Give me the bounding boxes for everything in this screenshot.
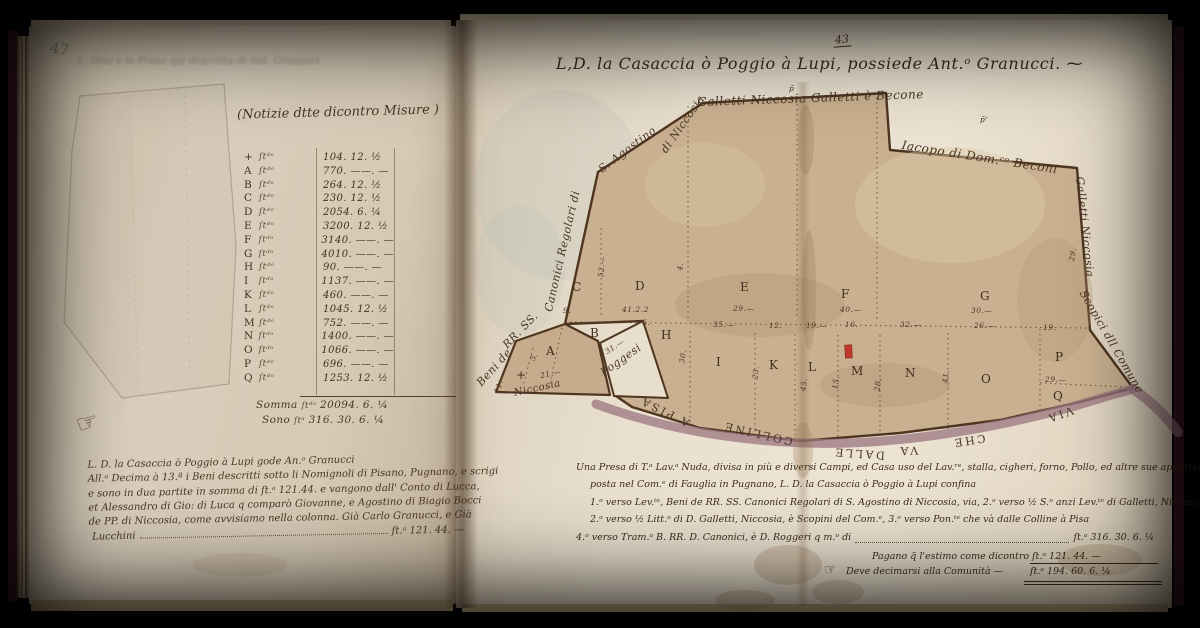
total-row3-text: Deve decimarsi alla Comunità — [846,566,1003,577]
measure-number: 12. [769,321,782,330]
parcel-letter: + [516,368,526,382]
parcel-letter: E [740,280,749,294]
totals-double-rule [1024,581,1162,582]
measure-number: 41.2.2 [622,305,649,314]
road-label-word: VIA [1045,404,1076,426]
description-line-5: 4.ᵒ verso Tram.ᵃ B. RR. D. Canonici, è D… [576,529,1154,546]
measure-number: p̃ [789,84,794,93]
measure-number: 5. [528,351,540,363]
map-boundary-label: Iacopo di Dom.ᶜᵒ Beconi [901,138,1059,176]
total-row2-value: ſt.ᵒ 121. 44. — [1032,551,1101,562]
book-gutter-shadow [444,20,478,608]
measure-number: 11. [492,379,505,395]
measure-number: 28. [872,377,883,391]
description-line: 2.ᵒ verso ½ Litt.ᵒ di D. Galletti, Nicco… [576,511,1154,528]
road-label-word: A PISA [638,394,692,429]
measure-number: 52.— [596,255,608,277]
total-estate-value: ſt.ᵃ 316. 30. 6. ¼ [1073,529,1154,546]
measure-number: 26.— [974,321,995,330]
measure-number: 15. [830,375,841,389]
road-label-word: COLLINE [721,419,794,448]
parcel-letter: F [841,287,849,301]
measure-number: 29. [1067,247,1078,262]
measure-number: 40.— [840,305,861,314]
measure-number: 41. [940,369,951,383]
map-boundary-label: di Niccosia [658,93,707,156]
parcel-letter: O [981,372,991,386]
measure-number: 29.— [1045,375,1066,384]
parcel-letter: Q [1053,389,1063,403]
parcel-letter: C [572,280,581,294]
measure-number: p̃ʳ [980,115,988,124]
parcel-letter: A [546,344,555,358]
road-label-word: VA [898,444,919,458]
map-boundary-label: Galletti Niccosia Galletti è Becone [697,87,924,109]
parcel-letter: K [769,358,778,372]
measure-number: 30. [677,349,688,363]
parcel-letter: P [1055,350,1063,364]
totals-rule [1030,563,1158,564]
measure-number: 9. [563,306,571,315]
map-boundary-label: Canonici Regolari di [542,189,583,313]
totals-double-rule [1024,584,1162,585]
measure-number: 30.— [971,306,992,315]
total-row3-value: ſt.ᵃ 194. 60. 6. ¼ [1030,566,1111,577]
parcel-letter: G [980,289,990,303]
total-row2-text: Pagano q̃ l'estimo come dicontro [872,551,1029,562]
description-line: posta nel Com.ᵉ di Fauglia in Pugnano, L… [576,476,1154,493]
measure-number: 6. [642,318,650,327]
parcel-letter: D [635,279,645,293]
page-crease [796,82,810,606]
description-line: Una Presa di T.ᵃ Lav.ᵃ Nuda, divisa in p… [576,459,1154,476]
description-line: 1.ᵒ verso Lev.ᵗᵉ, Beni de RR. SS. Canoni… [576,494,1154,511]
manicule-icon: ☞ [823,561,838,579]
measure-number: 19. [1043,323,1056,332]
measure-number: 23. [750,365,761,379]
measure-number: 32.— [900,320,921,329]
measure-number: 16. [845,320,858,329]
map-boundary-label: S. Agostino [596,124,659,176]
map-boundary-label: Scopici dll Comune [1077,288,1147,396]
parcel-letter: I [716,355,721,369]
road-label-word: CHE [951,431,986,449]
map-boundary-label: RR. SS. [500,310,541,351]
measure-number: 29.— [733,304,754,313]
map-boundary-label: Galletti Niccosia [1073,176,1096,278]
parcel-letter: B [590,326,599,340]
parcel-letter: H [661,328,671,342]
dotted-leader [855,542,1069,543]
measure-number: 4. [675,262,685,271]
open-manuscript-book-photo: L. Dtta e la Presa qui descritta di Ant.… [0,0,1200,628]
right-page-description: Una Presa di T.ᵃ Lav.ᵃ Nuda, divisa in p… [576,459,1154,529]
parcel-letter: N [905,366,916,380]
measure-number: 35.— [713,320,734,329]
parcel-letter: M [851,364,863,378]
